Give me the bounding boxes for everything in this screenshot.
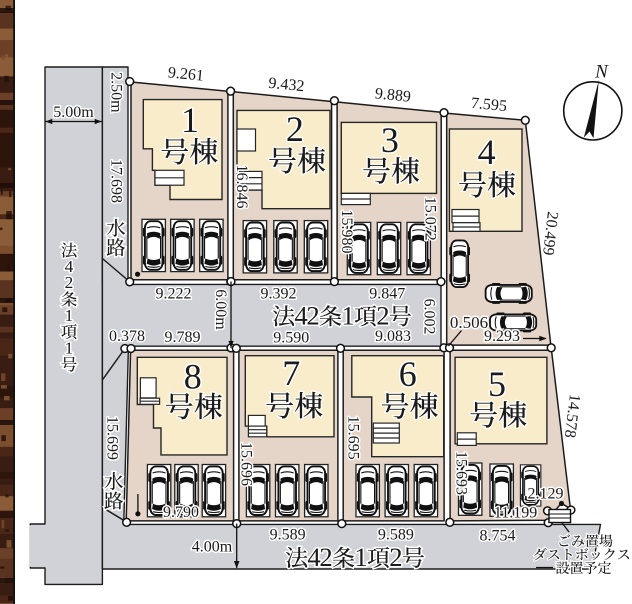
svg-text:4: 4: [478, 132, 496, 172]
svg-text:4.00m: 4.00m: [192, 539, 233, 556]
svg-text:1: 1: [181, 100, 199, 140]
svg-text:15.699: 15.699: [103, 416, 120, 460]
svg-text:6: 6: [399, 354, 417, 394]
svg-text:15.696: 15.696: [238, 442, 255, 486]
svg-text:15.693: 15.693: [453, 451, 470, 495]
svg-text:2: 2: [306, 301, 319, 331]
svg-text:2: 2: [389, 542, 402, 572]
svg-text:9.589: 9.589: [378, 527, 414, 544]
svg-text:2: 2: [319, 542, 332, 572]
svg-text:2: 2: [376, 301, 389, 331]
svg-text:0.506: 0.506: [450, 313, 488, 332]
svg-text:16.846: 16.846: [233, 165, 250, 209]
svg-text:9.432: 9.432: [268, 75, 305, 95]
svg-text:7.595: 7.595: [470, 95, 507, 115]
svg-text:2: 2: [65, 273, 74, 292]
svg-text:1: 1: [65, 338, 74, 357]
svg-text:9.790: 9.790: [163, 504, 199, 521]
svg-text:3: 3: [381, 120, 399, 160]
svg-text:7: 7: [282, 353, 300, 393]
svg-text:17.698: 17.698: [108, 159, 125, 203]
svg-text:1: 1: [65, 306, 74, 325]
svg-text:11.199: 11.199: [494, 505, 537, 522]
svg-text:2: 2: [286, 109, 304, 149]
svg-text:2.50m: 2.50m: [108, 72, 125, 113]
svg-text:N: N: [594, 62, 609, 83]
svg-text:9.589: 9.589: [270, 527, 306, 544]
svg-text:6.00m: 6.00m: [212, 289, 229, 330]
svg-text:5: 5: [488, 364, 506, 404]
svg-text:1: 1: [354, 542, 367, 572]
svg-text:9.590: 9.590: [273, 329, 309, 346]
svg-text:1: 1: [341, 301, 354, 331]
svg-text:9.222: 9.222: [156, 286, 192, 303]
svg-text:5.00m: 5.00m: [53, 104, 94, 121]
svg-text:8.754: 8.754: [480, 528, 516, 545]
svg-text:8: 8: [184, 357, 202, 397]
svg-text:9.789: 9.789: [165, 329, 201, 346]
svg-text:15.072: 15.072: [421, 197, 438, 241]
svg-text:9.261: 9.261: [167, 64, 204, 84]
svg-text:15.980: 15.980: [338, 210, 355, 254]
svg-text:2.129: 2.129: [528, 485, 564, 502]
svg-text:9.392: 9.392: [261, 286, 297, 303]
svg-text:0.378: 0.378: [109, 328, 145, 345]
svg-text:9.293: 9.293: [484, 328, 520, 345]
svg-text:9.889: 9.889: [374, 85, 411, 105]
svg-text:6.002: 6.002: [420, 299, 437, 335]
svg-text:15.695: 15.695: [345, 416, 362, 460]
